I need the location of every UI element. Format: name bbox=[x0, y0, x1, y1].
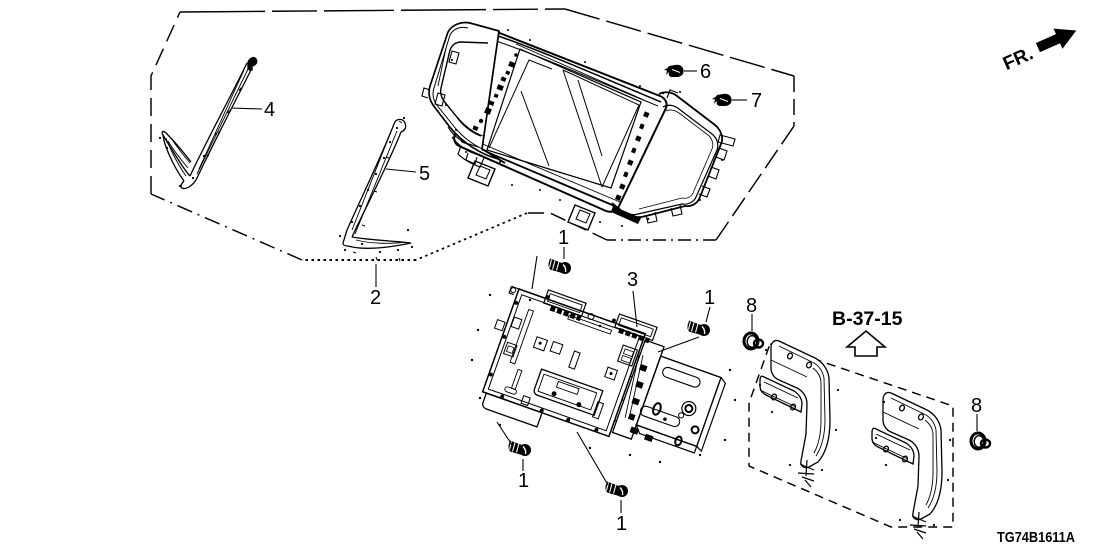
svg-text:1: 1 bbox=[616, 513, 627, 535]
svg-text:8: 8 bbox=[746, 295, 757, 317]
svg-text:5: 5 bbox=[419, 163, 430, 185]
svg-text:1: 1 bbox=[704, 287, 715, 309]
svg-text:B-37-15: B-37-15 bbox=[832, 308, 903, 330]
svg-text:3: 3 bbox=[627, 269, 638, 291]
svg-text:1: 1 bbox=[518, 470, 529, 492]
svg-text:TG74B1611A: TG74B1611A bbox=[997, 529, 1075, 546]
svg-text:6: 6 bbox=[700, 61, 711, 83]
svg-text:2: 2 bbox=[370, 287, 381, 309]
svg-text:7: 7 bbox=[751, 90, 762, 112]
svg-text:1: 1 bbox=[558, 227, 569, 249]
svg-text:8: 8 bbox=[971, 395, 982, 417]
svg-text:4: 4 bbox=[264, 99, 275, 121]
